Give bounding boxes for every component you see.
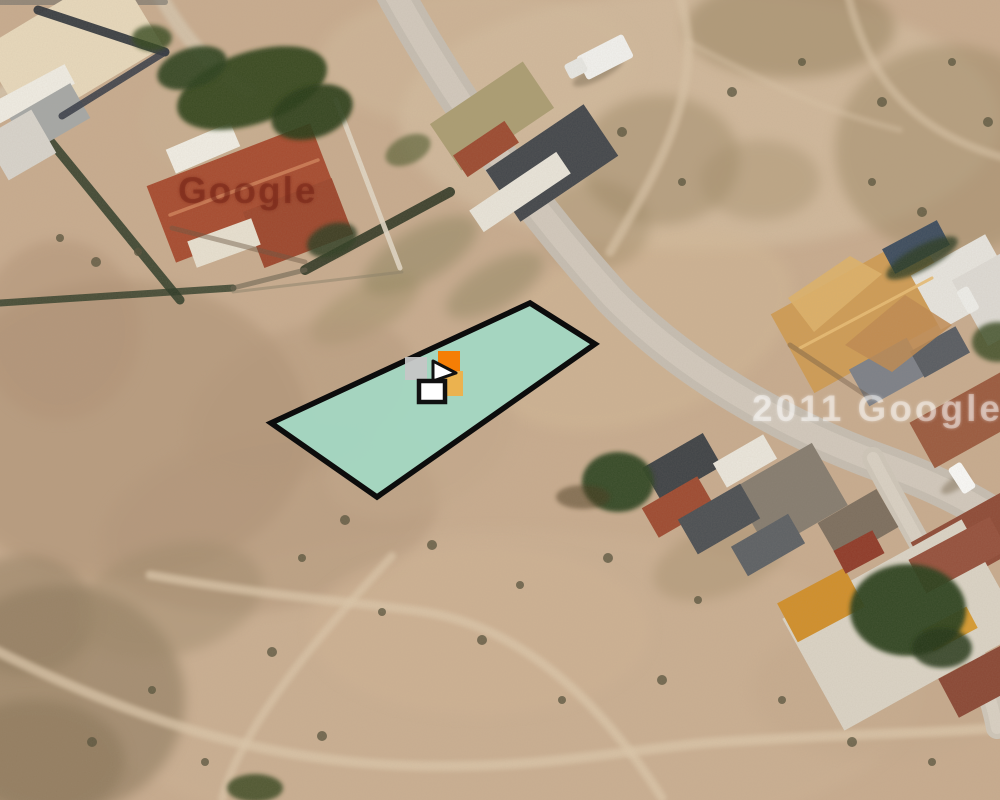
satellite-scene <box>0 0 1000 800</box>
flag-base-box <box>419 381 445 402</box>
marker-gray-square[interactable] <box>405 357 427 380</box>
aerial-map-view: Google 2011 Google <box>0 0 1000 800</box>
